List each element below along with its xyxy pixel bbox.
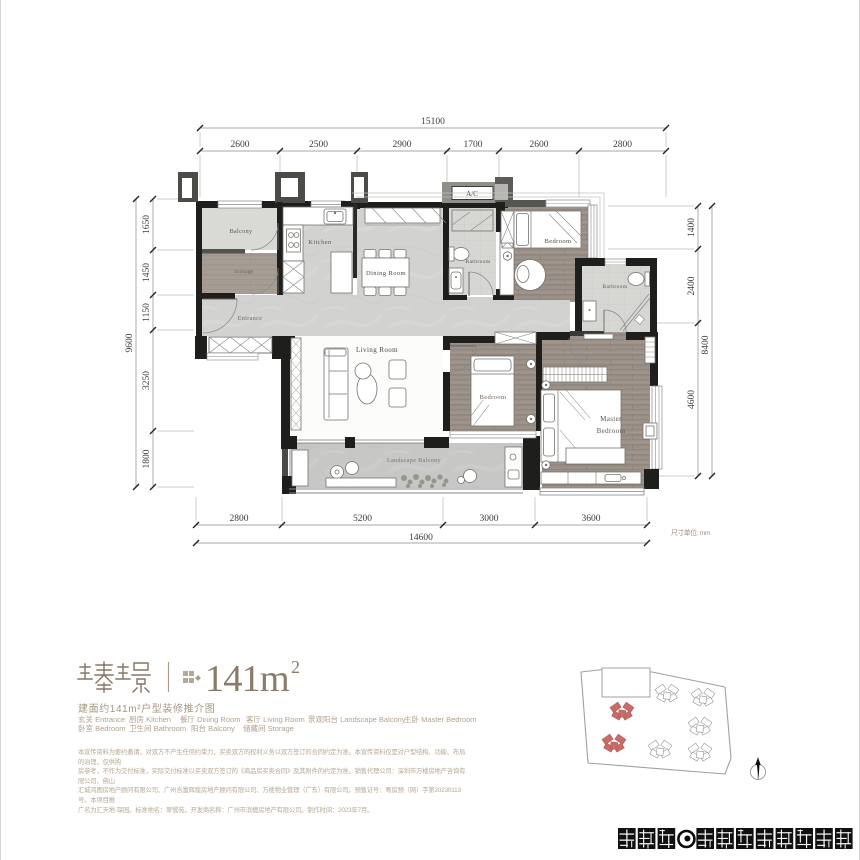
svg-text:4600: 4600 bbox=[687, 390, 697, 409]
svg-text:8400: 8400 bbox=[701, 335, 711, 354]
svg-text:Bathroom: Bathroom bbox=[602, 284, 628, 290]
svg-text:5200: 5200 bbox=[353, 514, 372, 524]
svg-text:Living Room: Living Room bbox=[356, 346, 398, 354]
svg-text:3000: 3000 bbox=[480, 514, 499, 524]
svg-text:Bedroom: Bedroom bbox=[545, 238, 572, 245]
svg-text:2500: 2500 bbox=[309, 140, 328, 150]
svg-text:Dining Room: Dining Room bbox=[366, 270, 406, 277]
svg-text:2800: 2800 bbox=[230, 514, 249, 524]
svg-text:Entrance: Entrance bbox=[238, 316, 263, 322]
svg-text:1800: 1800 bbox=[142, 449, 152, 468]
svg-text:1650: 1650 bbox=[142, 215, 152, 234]
svg-text:1150: 1150 bbox=[142, 303, 152, 322]
svg-text:3600: 3600 bbox=[582, 514, 601, 524]
svg-text:Landscape Balcony: Landscape Balcony bbox=[387, 458, 441, 464]
svg-text:Bathroom: Bathroom bbox=[465, 259, 491, 265]
svg-text:Kitchen: Kitchen bbox=[308, 239, 332, 246]
svg-text:3250: 3250 bbox=[142, 371, 152, 390]
svg-text:2400: 2400 bbox=[687, 276, 697, 295]
svg-text:2600: 2600 bbox=[231, 140, 250, 150]
svg-text:Bedroom: Bedroom bbox=[480, 394, 507, 401]
svg-text:14600: 14600 bbox=[409, 533, 433, 543]
svg-text:Storage: Storage bbox=[234, 269, 254, 275]
svg-text:1400: 1400 bbox=[687, 218, 697, 237]
svg-text:2600: 2600 bbox=[530, 140, 549, 150]
svg-text:2: 2 bbox=[291, 657, 300, 677]
svg-text:9600: 9600 bbox=[125, 333, 135, 352]
svg-text:Bedroom: Bedroom bbox=[597, 427, 626, 435]
svg-text:2800: 2800 bbox=[613, 140, 632, 150]
svg-text:Balcony: Balcony bbox=[230, 229, 253, 235]
svg-text:Master: Master bbox=[600, 415, 622, 423]
svg-text:141m: 141m bbox=[205, 658, 290, 700]
svg-text:尺寸单位: mm: 尺寸单位: mm bbox=[671, 528, 711, 537]
svg-text:15100: 15100 bbox=[421, 117, 445, 127]
svg-text:1450: 1450 bbox=[142, 263, 152, 282]
svg-text:1700: 1700 bbox=[464, 140, 483, 150]
svg-text:2900: 2900 bbox=[393, 140, 412, 150]
